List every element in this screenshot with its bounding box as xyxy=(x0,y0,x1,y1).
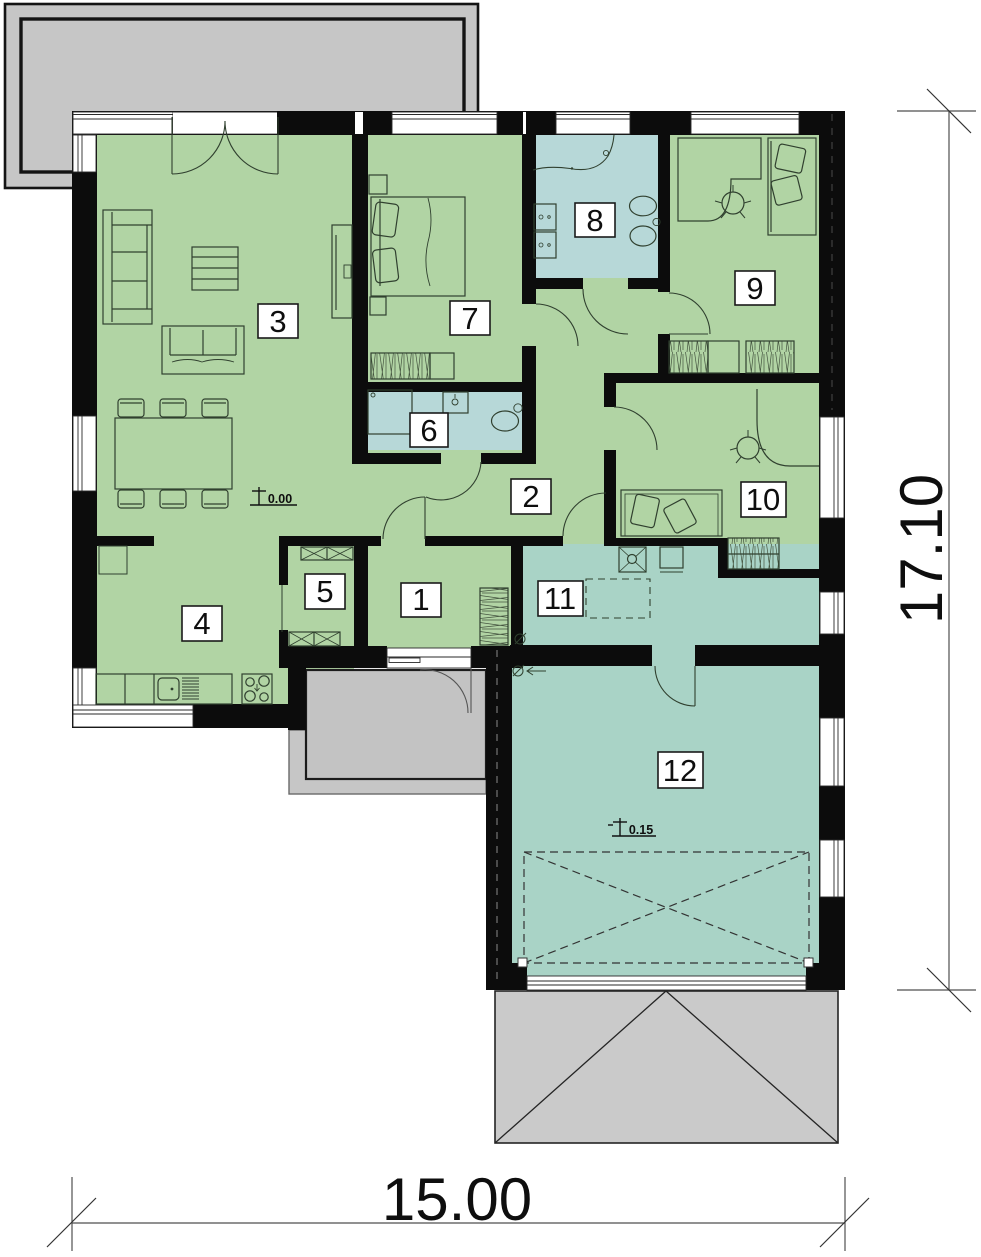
svg-text:1: 1 xyxy=(412,582,429,617)
svg-text:2: 2 xyxy=(522,479,539,514)
svg-text:3: 3 xyxy=(269,304,286,339)
svg-text:17.10: 17.10 xyxy=(888,474,955,624)
svg-text:4: 4 xyxy=(193,606,210,641)
svg-text:0.15: 0.15 xyxy=(629,823,653,837)
svg-text:12: 12 xyxy=(663,753,697,788)
svg-text:8: 8 xyxy=(586,203,603,238)
svg-text:11: 11 xyxy=(544,581,576,616)
svg-text:5: 5 xyxy=(316,574,333,609)
svg-text:7: 7 xyxy=(461,301,478,336)
svg-text:0.00: 0.00 xyxy=(268,492,292,506)
svg-text:15.00: 15.00 xyxy=(382,1166,532,1233)
svg-text:9: 9 xyxy=(746,271,763,306)
svg-text:6: 6 xyxy=(420,413,437,448)
svg-text:10: 10 xyxy=(746,482,780,517)
